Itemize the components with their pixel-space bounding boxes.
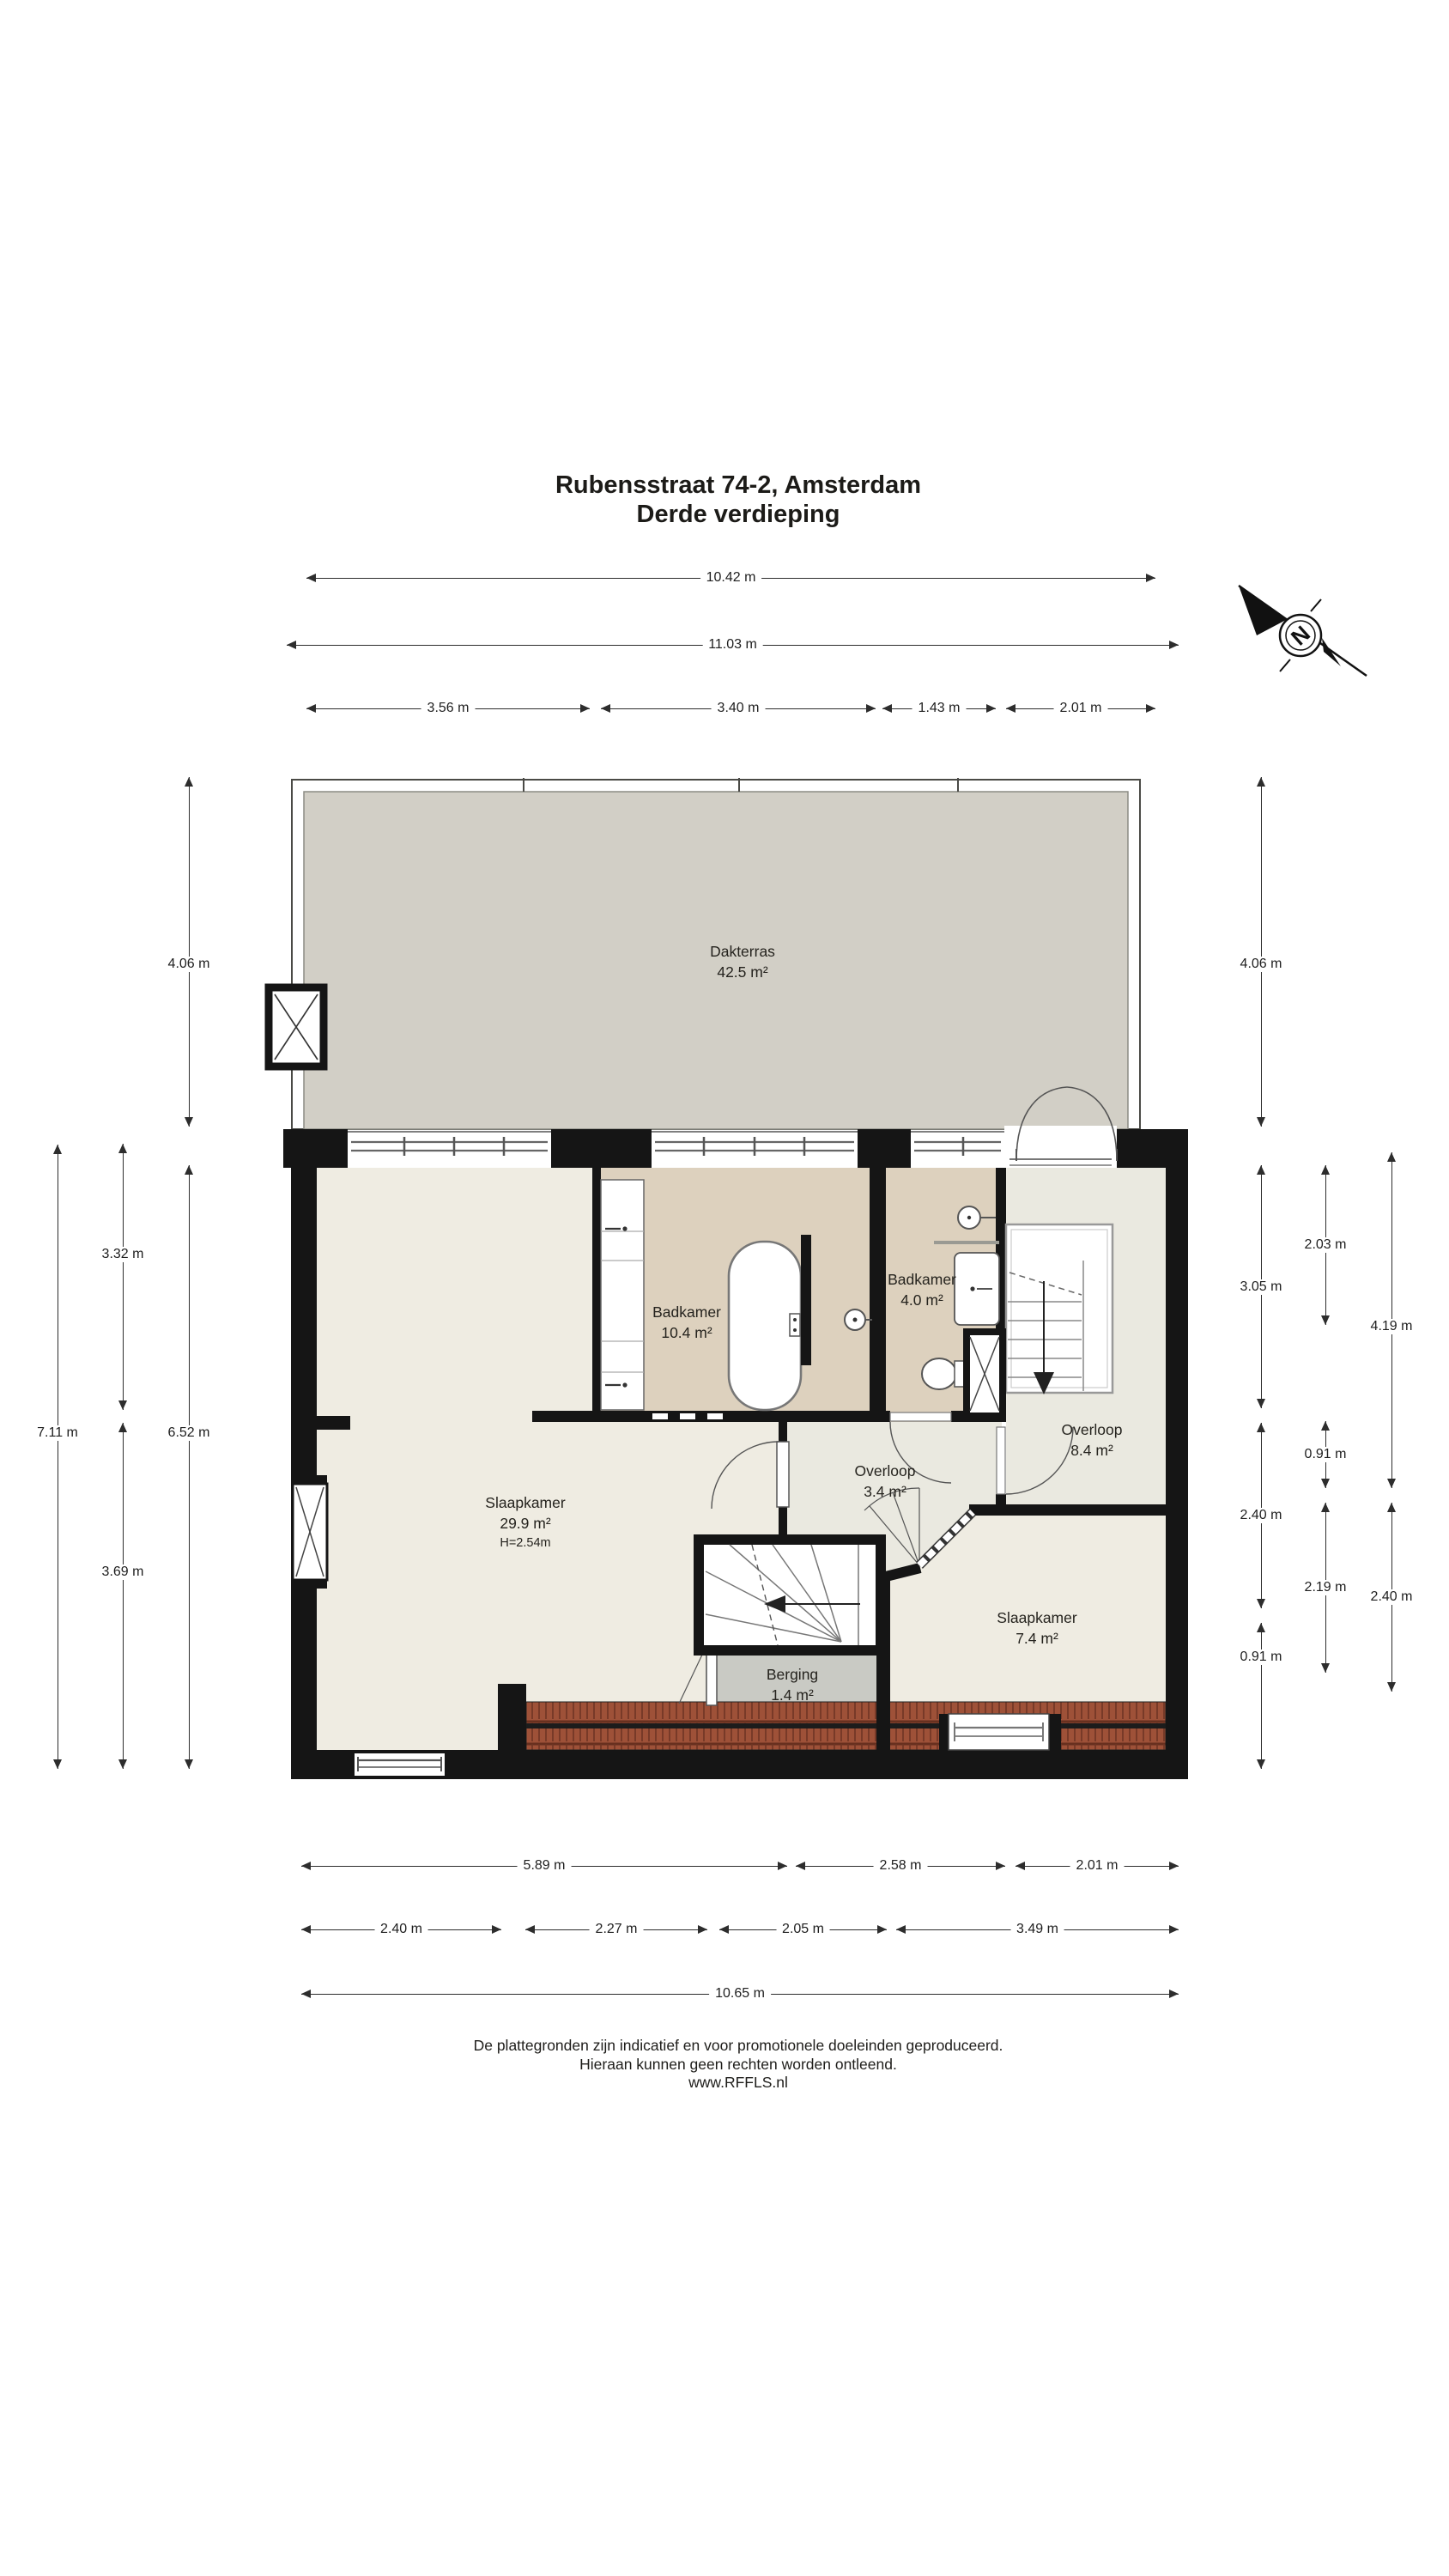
shower-tray-icon	[955, 1253, 999, 1325]
dimension-label: 3.49 m	[1010, 1922, 1064, 1937]
room-label-badkamer-2: Badkamer 4.0 m²	[888, 1269, 956, 1310]
dimension: 2.40 m	[1252, 1423, 1270, 1608]
dimension-label: 3.32 m	[96, 1247, 150, 1262]
dimension: 3.49 m	[896, 1921, 1179, 1938]
dimension-label: 0.91 m	[1234, 1649, 1288, 1665]
room-name: Dakterras	[710, 941, 775, 962]
dimension-label: 2.58 m	[874, 1858, 928, 1874]
dimension-label: 5.89 m	[518, 1858, 572, 1874]
dimension-label: 11.03 m	[702, 637, 763, 653]
floor-plan-drawing: N	[0, 0, 1449, 2576]
room-area: 10.4 m²	[652, 1322, 721, 1343]
dimension-label: 1.43 m	[912, 701, 967, 716]
dimension: 10.42 m	[306, 569, 1155, 586]
dimension: 4.06 m	[180, 777, 197, 1127]
dimension: 3.56 m	[306, 700, 590, 717]
dimension: 4.19 m	[1383, 1152, 1400, 1488]
dimension-label: 2.27 m	[590, 1922, 644, 1937]
dimension-label: 3.56 m	[421, 701, 476, 716]
compass-icon: N	[1239, 586, 1367, 676]
dimension-label: 2.03 m	[1299, 1237, 1353, 1253]
dimension-label: 2.40 m	[1365, 1589, 1419, 1605]
dimension: 7.11 m	[49, 1145, 66, 1769]
dimension: 3.05 m	[1252, 1165, 1270, 1408]
room-name: Badkamer	[652, 1302, 721, 1322]
room-area: 8.4 m²	[1061, 1440, 1122, 1461]
dimension-label: 10.65 m	[709, 1986, 771, 2002]
winder-stairs	[694, 1534, 886, 1656]
dimension: 3.32 m	[114, 1144, 131, 1410]
dimension-label: 2.40 m	[374, 1922, 428, 1937]
room-area: 42.5 m²	[710, 962, 775, 982]
dimension-label: 3.40 m	[712, 701, 766, 716]
bathtub-icon	[729, 1242, 801, 1410]
room-name: Slaapkamer	[997, 1607, 1076, 1628]
dimension: 2.40 m	[1383, 1503, 1400, 1692]
dimension: 2.03 m	[1317, 1165, 1334, 1325]
dimension: 3.40 m	[601, 700, 876, 717]
room-label-overloop-1: Overloop 8.4 m²	[1061, 1419, 1122, 1461]
dimension: 10.65 m	[301, 1985, 1179, 2002]
room-label-slaapkamer-1: Slaapkamer 29.9 m² H=2.54m	[485, 1492, 565, 1552]
dimension-label: 4.19 m	[1365, 1319, 1419, 1334]
dimension-label: 3.05 m	[1234, 1279, 1288, 1295]
dimension-label: 2.01 m	[1070, 1858, 1125, 1874]
dimension: 2.27 m	[525, 1921, 707, 1938]
room-ceiling-height: H=2.54m	[485, 1534, 565, 1552]
toilet-icon	[922, 1358, 970, 1389]
room-label-slaapkamer-2: Slaapkamer 7.4 m²	[997, 1607, 1076, 1649]
dimension-label: 0.91 m	[1299, 1447, 1353, 1462]
room-name: Overloop	[854, 1461, 915, 1481]
roof-tile-band	[526, 1702, 1166, 1750]
dimension-label: 4.06 m	[1234, 957, 1288, 972]
room-label-overloop-2: Overloop 3.4 m²	[854, 1461, 915, 1502]
dormer-window	[939, 1714, 1061, 1750]
room-name: Slaapkamer	[485, 1492, 565, 1513]
dimension-label: 2.19 m	[1299, 1580, 1353, 1595]
room-name: Overloop	[1061, 1419, 1122, 1440]
disclaimer: De plattegronden zijn indicatief en voor…	[0, 2037, 1449, 2092]
room-label-berging: Berging 1.4 m²	[767, 1664, 818, 1705]
dimension-label: 4.06 m	[162, 957, 216, 972]
dimension: 2.40 m	[301, 1921, 501, 1938]
dimension-label: 2.40 m	[1234, 1508, 1288, 1523]
dimension: 3.69 m	[114, 1423, 131, 1769]
room-area: 7.4 m²	[997, 1628, 1076, 1649]
room-area: 4.0 m²	[888, 1290, 956, 1310]
room-area: 3.4 m²	[854, 1481, 915, 1502]
side-window	[293, 1475, 327, 1589]
dimension: 2.05 m	[719, 1921, 887, 1938]
dimension-label: 2.01 m	[1054, 701, 1108, 716]
dimension: 0.91 m	[1252, 1623, 1270, 1769]
website-link: www.RFFLS.nl	[0, 2074, 1449, 2092]
disclaimer-line-1: De plattegronden zijn indicatief en voor…	[0, 2037, 1449, 2055]
dimension-label: 2.05 m	[776, 1922, 830, 1937]
room-area: 29.9 m²	[485, 1513, 565, 1534]
roof-hatch-icon	[269, 987, 324, 1066]
dimension: 1.43 m	[882, 700, 996, 717]
dimension: 2.19 m	[1317, 1503, 1334, 1673]
dimension: 0.91 m	[1317, 1421, 1334, 1488]
dimension: 4.06 m	[1252, 777, 1270, 1127]
bottom-window	[355, 1753, 445, 1776]
dimension: 11.03 m	[287, 636, 1179, 653]
shower-screen	[801, 1235, 811, 1365]
room-area: 1.4 m²	[767, 1685, 818, 1705]
room-label-dakterras: Dakterras 42.5 m²	[710, 941, 775, 982]
room-name: Berging	[767, 1664, 818, 1685]
disclaimer-line-2: Hieraan kunnen geen rechten worden ontle…	[0, 2056, 1449, 2074]
room-name: Badkamer	[888, 1269, 956, 1290]
vanity-cabinet	[601, 1180, 644, 1410]
room-label-badkamer-1: Badkamer 10.4 m²	[652, 1302, 721, 1343]
dimension: 2.01 m	[1016, 1857, 1179, 1874]
dimension-label: 7.11 m	[31, 1425, 84, 1441]
dimension: 6.52 m	[180, 1165, 197, 1769]
main-stairs	[1006, 1224, 1113, 1394]
dimension: 5.89 m	[301, 1857, 787, 1874]
terrace-area	[269, 778, 1140, 1129]
dimension-label: 6.52 m	[162, 1425, 216, 1441]
dimension-label: 3.69 m	[96, 1564, 150, 1580]
dimension: 2.58 m	[796, 1857, 1005, 1874]
dimension-label: 10.42 m	[700, 570, 762, 586]
dimension: 2.01 m	[1006, 700, 1155, 717]
floorplan-page: Rubensstraat 74-2, Amsterdam Derde verdi…	[0, 0, 1449, 2576]
shaft-icon	[967, 1332, 1003, 1416]
